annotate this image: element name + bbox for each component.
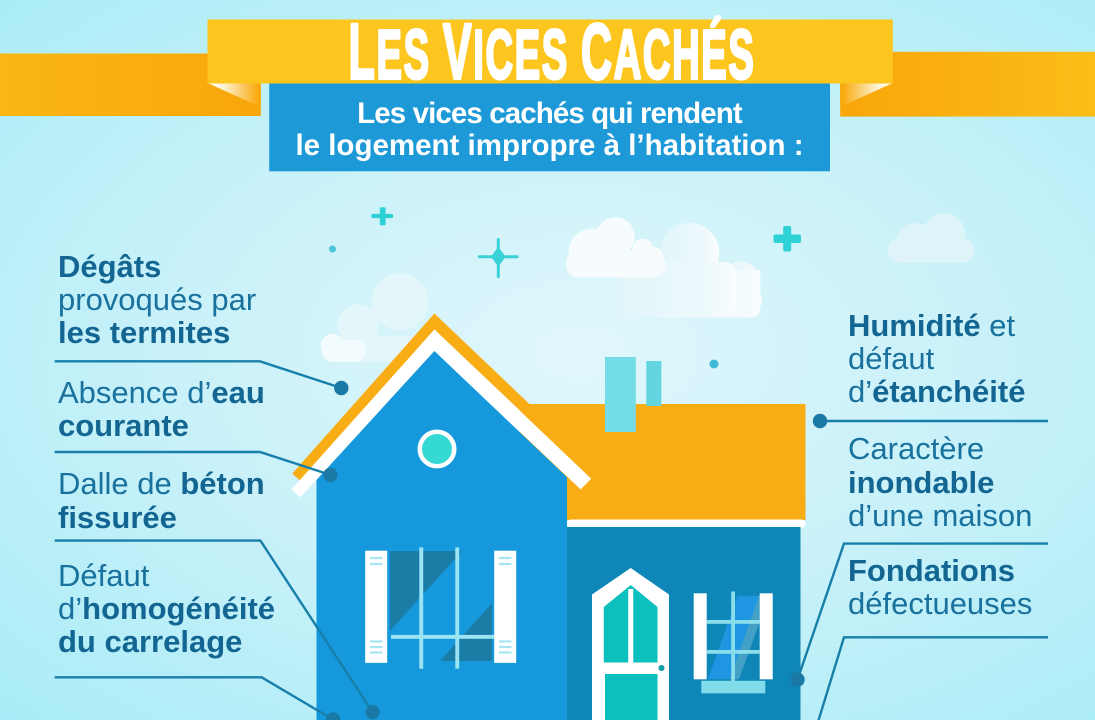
- svg-text:LES VICES CACHÉS: LES VICES CACHÉS: [349, 8, 756, 96]
